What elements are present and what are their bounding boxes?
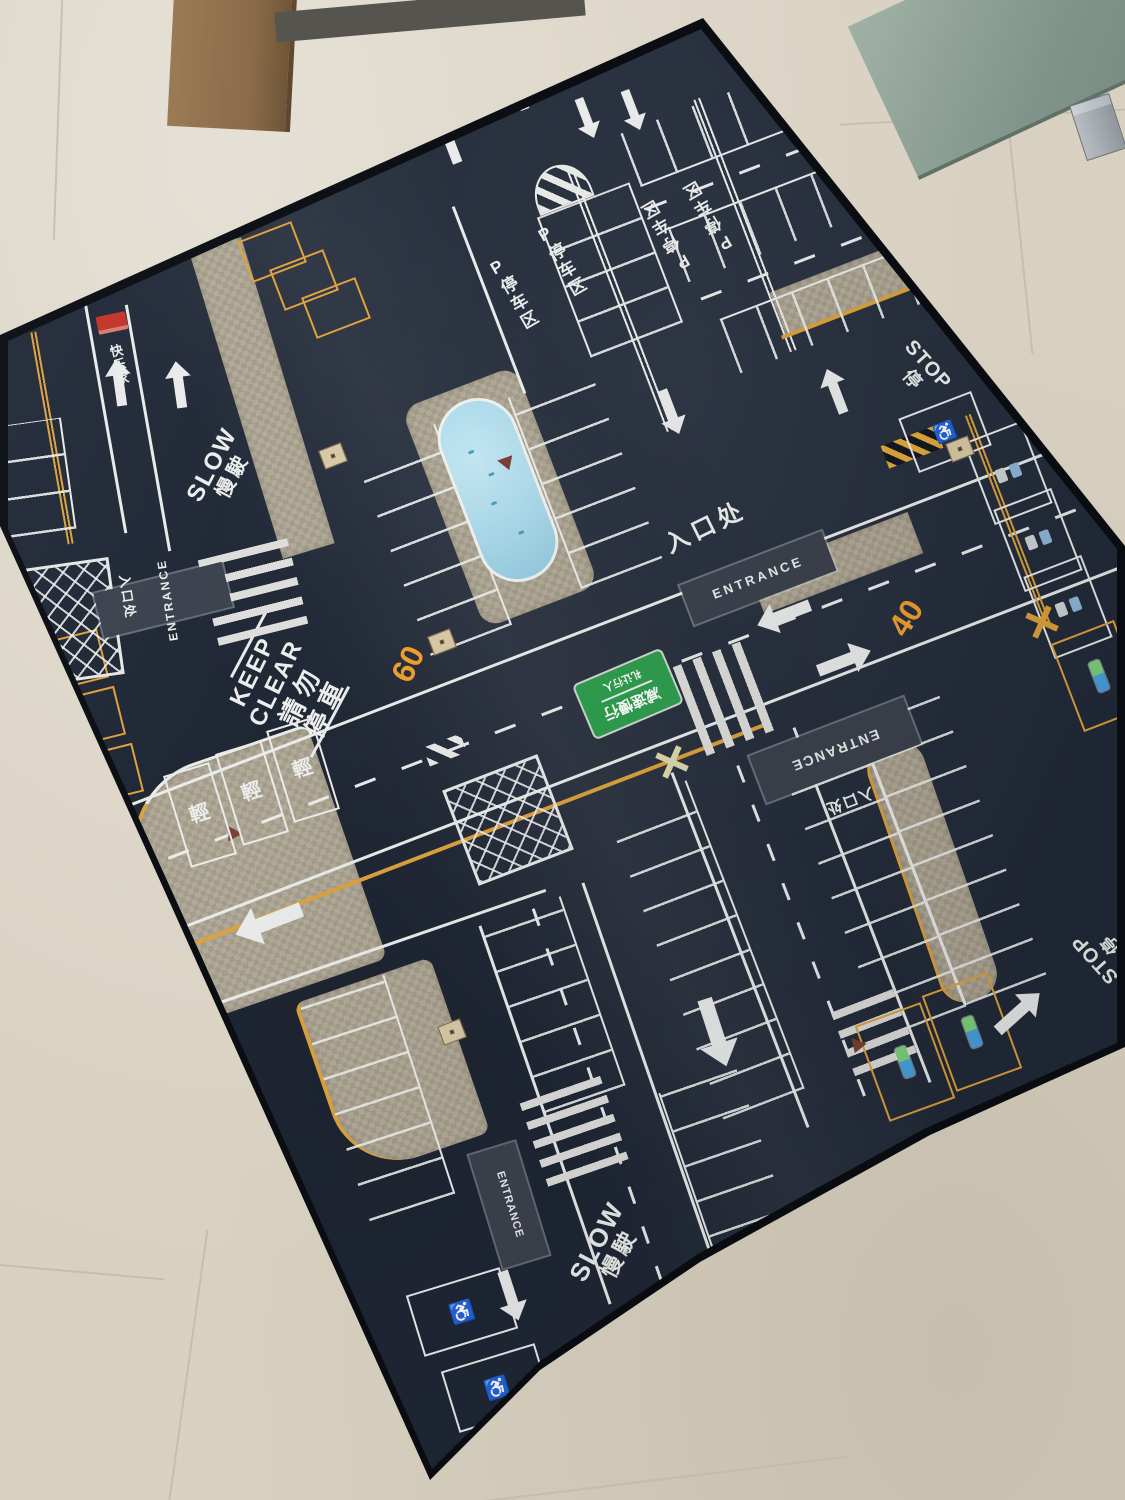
no-stopping-hatch-box [442,754,574,886]
grout-line [168,1229,209,1500]
grout-line [53,0,63,240]
arrow-icon [173,375,187,408]
charging-pile-icon [1038,529,1052,546]
stop-marking: STOP 停 [885,337,954,408]
light-vehicle-label: 輕 [187,802,212,828]
playmat: ♿ ♿ ♿ [0,0,1125,1500]
parking-row [605,780,804,1119]
utility-box [318,442,348,469]
charging-pile-icon [1088,659,1111,693]
charging-pile-icon [894,1045,916,1079]
green-guide-sign: 减速慢行 礼让行人 [572,647,685,740]
give-way-hatch [423,733,468,766]
metal-hinge-icon [1069,93,1125,161]
door-track [274,0,585,42]
parking-row [189,1185,375,1476]
grout-line [1006,116,1033,355]
charging-pile-icon [1008,462,1022,479]
grout-line [431,1455,848,1500]
road-edge-line [125,305,171,552]
parking-zone-marking: P停车区 [484,255,541,335]
parking-row [478,896,625,1113]
arrow-icon [828,381,849,414]
arrow-icon [575,97,594,127]
parking-row [0,418,76,539]
charging-pile-icon [1068,596,1082,613]
charging-pile-icon [994,467,1008,484]
light-vehicle-label: 輕 [290,757,315,783]
charging-pile-icon [961,1015,983,1049]
light-vehicle-label: 輕 [239,780,264,806]
playmat-photo-scene: ♿ ♿ ♿ [0,0,1125,1500]
stop-marking: STOP 停 [1068,917,1125,988]
brand-logo [95,311,128,335]
arrow-icon [621,89,640,119]
charging-pile-icon [1024,534,1038,551]
entrance-label-zh: 入口处 [661,497,751,558]
speed-limit-60: 60 [385,640,432,687]
grout-line [0,1264,165,1281]
brand-name: 快乐家 [107,343,129,387]
wheelchair-icon: ♿ [446,1296,477,1327]
handicap-stall: ♿ [441,1343,553,1433]
speed-limit-40: 40 [882,594,930,642]
